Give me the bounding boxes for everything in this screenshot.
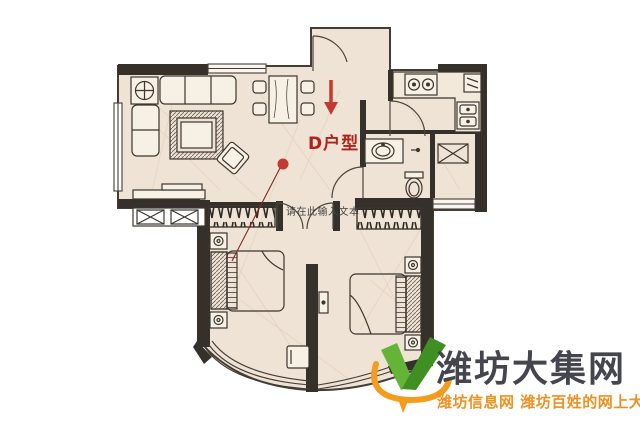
wardrobe-left <box>209 206 275 227</box>
watermark-site-name: 潍坊大集网 <box>436 349 626 390</box>
nightstand <box>210 233 227 249</box>
nightstand <box>405 335 421 350</box>
floorplan-canvas: D户型 请在此输入文本 潍坊大集网 潍坊信息网 潍坊百姓的网上大集 <box>0 0 640 427</box>
floorplan-image: D户型 请在此输入文本 潍坊大集网 潍坊信息网 潍坊百姓的网上大集 <box>0 0 640 427</box>
corner-lamp-icon <box>131 77 158 104</box>
bath-bottom-window <box>433 199 475 209</box>
living-left-window <box>114 103 122 191</box>
fridge <box>464 74 481 92</box>
nightstand <box>210 312 227 328</box>
wall-tv <box>319 292 328 313</box>
wardrobe-right <box>357 208 421 229</box>
nightstand <box>405 257 421 273</box>
ac-platform <box>133 208 205 226</box>
watermark-tagline: 潍坊信息网 潍坊百姓的网上大集 <box>437 393 640 411</box>
placeholder-text: 请在此输入文本 <box>286 205 360 218</box>
kitchen-sink <box>457 102 479 129</box>
red-dot-marker <box>278 159 289 170</box>
bedroom-cabinet <box>287 346 309 368</box>
coffee-table <box>181 122 212 148</box>
living-top-window <box>208 64 266 73</box>
stove <box>405 74 437 95</box>
unit-type-label: D户型 <box>308 133 359 154</box>
